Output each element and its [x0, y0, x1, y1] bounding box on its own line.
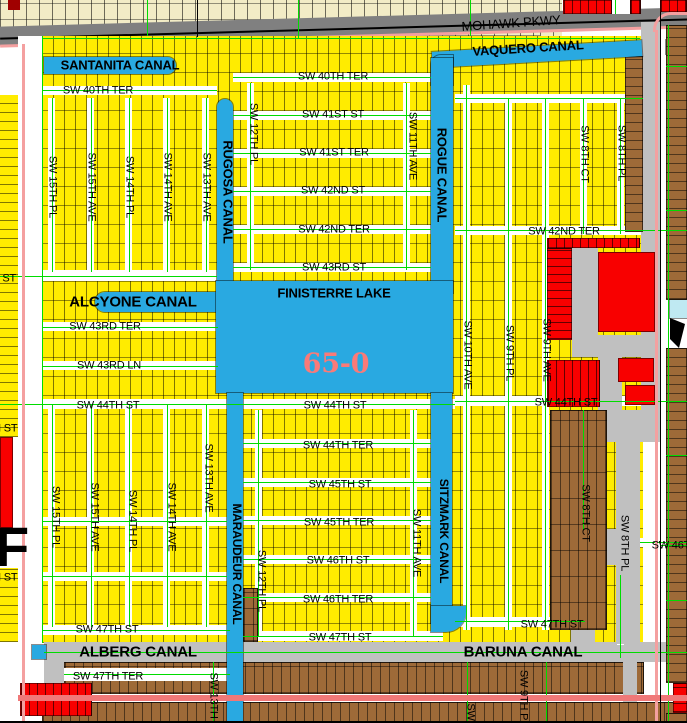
parcel-block-red	[625, 385, 655, 405]
street-label: SW 46TH TER	[303, 595, 373, 606]
parcel-block-red	[547, 238, 640, 248]
street-label: SW 43RD TER	[69, 322, 141, 333]
street-label: SW 12TH PL	[248, 103, 259, 165]
street-label: SW 44TH ST	[304, 401, 367, 412]
street-label: SW 8TH PL	[616, 125, 627, 181]
street-label: SW 44TH ST	[77, 401, 140, 412]
street-centerline	[42, 576, 227, 577]
street-label: SW 15TH AVE	[86, 152, 97, 221]
parcel-block-yellow	[0, 95, 18, 437]
road-gray	[572, 243, 598, 338]
plat-boundary-line-bold	[18, 695, 687, 701]
street-centerline	[147, 0, 148, 36]
plat-code-label: 65-0	[303, 351, 370, 378]
canal-label-maraudeur: MARAUDEUR CANAL	[231, 504, 243, 625]
street-label: SW 46TH ST	[307, 556, 370, 567]
parcel-block-red	[563, 0, 612, 14]
street-centerline	[206, 405, 207, 627]
parcel-block-brown	[666, 348, 687, 683]
street-centerline	[666, 455, 687, 456]
street-label: SW 42ND TER	[528, 227, 600, 238]
street-label: SW 14TH AVE	[162, 152, 173, 221]
street-label: SW 14TH PL	[124, 156, 135, 218]
street-label: SW 9TH PL	[504, 325, 515, 381]
street-label: SW 47TH TER	[73, 672, 143, 683]
boundary-line	[660, 12, 661, 723]
street-label: SW 45TH ST	[309, 480, 372, 491]
street-label: SW	[465, 703, 476, 720]
street-centerline	[615, 0, 616, 14]
canal-label-santanita: SANTANITA CANAL	[61, 59, 180, 72]
street-label: SW 44TH ST	[535, 398, 598, 409]
canal-label-alcyone: ALCYONE CANAL	[69, 295, 196, 310]
street-label: SW 47TH ST	[521, 620, 584, 631]
canal-label-baruna: BARUNA CANAL	[464, 645, 583, 660]
street-label: SW 13TH AVE	[208, 672, 219, 723]
street-label: SW 46TH ST	[652, 541, 687, 552]
street-label: SW 9TH PL	[518, 670, 529, 723]
canal-label-rugosa: RUGOSA CANAL	[222, 140, 235, 243]
street-label: SW 41ST TER	[299, 148, 369, 159]
street-label: SW 15TH AVE	[89, 482, 100, 551]
street-label: SW 40TH TER	[63, 86, 133, 97]
street-label: SW 43RD ST	[302, 263, 366, 274]
edge-letter-label: F	[0, 519, 29, 575]
street-centerline	[546, 662, 547, 723]
pond-water	[670, 300, 687, 318]
street-label: SW 11TH AVE	[411, 509, 422, 577]
road-gray	[572, 335, 657, 357]
street-label: SW 8TH CT	[579, 125, 590, 182]
street-centerline	[666, 66, 687, 67]
street-centerline	[298, 0, 299, 38]
parcel-block-red	[598, 252, 655, 332]
street-label: SW 13TH AVE	[203, 443, 214, 512]
street-label: SW 47TH ST	[309, 633, 372, 644]
street-centerline	[0, 404, 455, 405]
street-label: SW 41ST ST	[302, 110, 364, 121]
plat-boundary-line	[655, 30, 658, 723]
parcel-block-brown	[42, 702, 687, 723]
street-centerline	[42, 36, 43, 643]
lake-label-finisterre: FINISTERRE LAKE	[277, 287, 390, 300]
parcel-block-red	[630, 0, 641, 14]
plat-map-viewport[interactable]: MOHAWK PKWYSANTANITA CANALVAQUERO CANALS…	[0, 0, 687, 723]
street-label: SW 45TH TER	[304, 518, 374, 529]
street-label: SW 44TH ST	[0, 424, 17, 435]
street-label: SW 43RD ST	[0, 274, 16, 285]
street-label: SW 11TH AVE	[407, 112, 418, 180]
road-gray	[600, 410, 660, 442]
street-centerline	[620, 575, 621, 658]
street-label: SW 47TH ST	[76, 625, 139, 636]
street-label: SW 13TH AVE	[201, 152, 212, 221]
street-label: SW 40TH TER	[298, 72, 368, 83]
street-label: SW 14TH AVE	[166, 482, 177, 551]
street-centerline	[0, 276, 217, 277]
street-label: SW 12TH PL	[256, 550, 267, 612]
parcel-block-darkred	[8, 0, 20, 10]
boundary-line	[197, 0, 198, 37]
street-label: SW 42ND ST	[301, 186, 365, 197]
street-label: SW 15TH PL	[50, 486, 61, 548]
street-label: SW 8TH CT	[580, 484, 591, 541]
map-structure	[670, 318, 685, 348]
street-label: SW 43RD LN	[77, 361, 141, 372]
street-label: SW 8TH PL	[619, 515, 630, 571]
street-label: SW 14TH PL	[127, 490, 138, 552]
parcel-block-red	[660, 0, 687, 12]
parcel-block-brown	[625, 56, 643, 232]
canal-label-sitzmark: SITZMARK CANAL	[438, 479, 450, 584]
street-label: SW 10TH AVE	[462, 320, 473, 389]
street-centerline	[666, 210, 687, 211]
street-label: SW 42ND TER	[298, 225, 370, 236]
parcel-block-red	[618, 358, 654, 382]
plat-boundary-line	[22, 44, 25, 723]
street-centerline	[666, 600, 687, 601]
street-label: SW 44TH TER	[303, 441, 373, 452]
street-centerline	[668, 25, 669, 723]
street-label: SW 15TH PL	[47, 156, 58, 218]
canal-label-alberg: ALBERG CANAL	[79, 645, 197, 660]
parcel-block-brown	[550, 410, 607, 630]
canal-label-rogue: ROGUE CANAL	[436, 128, 449, 223]
street-centerline	[455, 98, 643, 99]
street-label: SW 9TH AVE	[541, 318, 552, 381]
